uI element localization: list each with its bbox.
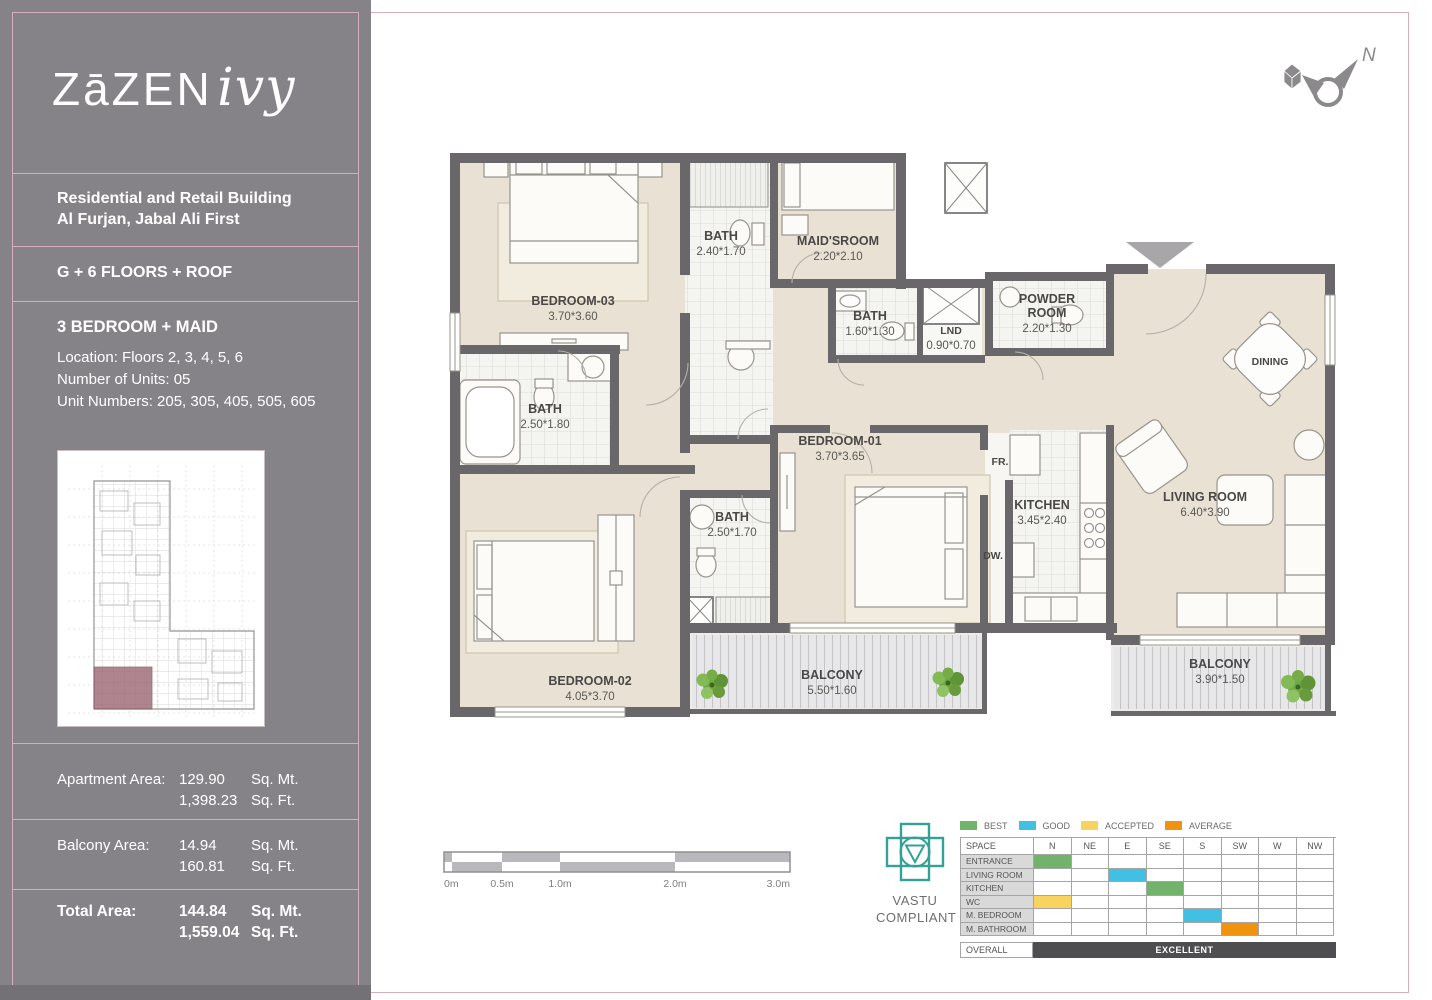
legend-label: AVERAGE	[1189, 821, 1232, 831]
vastu-overall-value: EXCELLENT	[1033, 942, 1336, 958]
area-value-mt: 144.84	[179, 902, 251, 923]
vastu-empty-cell	[1147, 923, 1185, 937]
area-value-mt: 129.90	[179, 770, 251, 791]
legend-label: BEST	[984, 821, 1008, 831]
unit-details: Location: Floors 2, 3, 4, 5, 6 Number of…	[57, 347, 316, 413]
vastu-row: WC	[961, 896, 1336, 910]
room-label: DINING	[1252, 356, 1289, 368]
room-dimensions: 3.45*2.40	[1017, 515, 1066, 527]
vastu-rating-cell	[1034, 855, 1072, 869]
divider	[12, 301, 359, 302]
room-label: POWDER	[1019, 292, 1075, 306]
building-title: Residential and Retail Building Al Furja…	[57, 188, 292, 230]
vastu-header-direction: NW	[1297, 838, 1335, 855]
vastu-empty-cell	[1034, 923, 1072, 937]
room-dimensions: 2.40*1.70	[696, 246, 745, 258]
vastu-empty-cell	[1184, 896, 1222, 910]
vastu-empty-cell	[1222, 896, 1260, 910]
room-label: FR.	[992, 456, 1009, 468]
brand-subname: ivy	[217, 58, 295, 118]
scale-label: 3.0m	[767, 878, 791, 890]
vastu-row: ENTRANCE	[961, 855, 1336, 869]
vastu-header-space: SPACE	[961, 838, 1034, 855]
room-label: BEDROOM-01	[798, 434, 881, 448]
area-value-mt: 14.94	[179, 836, 251, 857]
vastu-row: LIVING ROOM	[961, 869, 1336, 883]
pillow	[590, 162, 616, 174]
room-label: LND	[940, 325, 962, 337]
apartment-area-block: Apartment Area: 129.90 Sq. Mt. 1,398.23 …	[57, 770, 347, 811]
sink	[1000, 287, 1020, 307]
unit-type: 3 BEDROOM + MAID	[57, 318, 218, 337]
brand-name: ZāZEN	[52, 63, 213, 115]
pillow	[945, 493, 963, 543]
room-label: LIVING ROOM	[1163, 490, 1247, 504]
compass-north-label: N	[1362, 45, 1376, 66]
highlighted-unit	[94, 667, 152, 709]
vastu-empty-cell	[1072, 855, 1110, 869]
units-count-line: Number of Units: 05	[57, 369, 316, 391]
sidebar: ZāZEN ivy Residential and Retail Buildin…	[0, 0, 371, 1000]
room-dimensions: 4.05*3.70	[565, 691, 614, 703]
room-dimensions: 1.60*1.30	[845, 326, 894, 338]
room-dimensions: 2.20*2.10	[813, 251, 862, 263]
vastu-caption-line1: VASTU	[876, 892, 954, 909]
scale-label: 2.0m	[663, 878, 687, 890]
vastu-empty-cell	[1034, 869, 1072, 883]
room-label: DW.	[983, 550, 1003, 562]
room-dimensions: 5.50*1.60	[807, 685, 856, 697]
sidebar-footer-strip	[0, 985, 371, 1000]
sink	[690, 505, 714, 529]
vastu-space-label: WC	[961, 896, 1034, 910]
area-unit-ft: Sq. Ft.	[251, 857, 347, 878]
unit-numbers-line: Unit Numbers: 205, 305, 405, 505, 605	[57, 391, 316, 413]
area-unit-mt: Sq. Mt.	[251, 770, 347, 791]
floor-plan: BEDROOM-033.70*3.60BATH2.40*1.70MAID'SRO…	[440, 145, 1360, 745]
frame-bottom-line	[371, 992, 1409, 993]
frame-right-line	[1408, 12, 1409, 993]
room-label: BALCONY	[801, 668, 863, 682]
room-dimensions: 2.50*1.80	[520, 419, 569, 431]
key-plan-thumbnail	[57, 450, 265, 727]
vastu-empty-cell	[1184, 869, 1222, 883]
vastu-empty-cell	[1184, 923, 1222, 937]
pillow	[477, 595, 492, 639]
vastu-header-direction: SW	[1222, 838, 1260, 855]
vastu-rating-cell	[1147, 882, 1185, 896]
vastu-header-direction: SE	[1147, 838, 1185, 855]
vastu-empty-cell	[1147, 896, 1185, 910]
room-dimensions: 2.20*1.30	[1022, 323, 1071, 335]
vastu-empty-cell	[1072, 896, 1110, 910]
legend-chip	[960, 821, 977, 830]
legend-chip	[1081, 821, 1098, 830]
room-label: BATH	[853, 309, 887, 323]
vastu-rating-cell	[1034, 896, 1072, 910]
vastu-empty-cell	[1297, 855, 1335, 869]
balcony-area-block: Balcony Area: 14.94 Sq. Mt. 160.81 Sq. F…	[57, 836, 347, 877]
building-line2: Al Furjan, Jabal Ali First	[57, 209, 292, 230]
room-label: KITCHEN	[1014, 498, 1070, 512]
legend-chip	[1019, 821, 1036, 830]
vastu-header-direction: S	[1184, 838, 1222, 855]
divider	[12, 246, 359, 247]
vastu-empty-cell	[1109, 855, 1147, 869]
scale-bar-blocks	[444, 852, 790, 872]
area-label: Balcony Area:	[57, 836, 179, 857]
building-line1: Residential and Retail Building	[57, 188, 292, 209]
vastu-space-label: KITCHEN	[961, 882, 1034, 896]
area-unit-ft: Sq. Ft.	[251, 923, 347, 944]
scale-bar-labels: 0m0.5m1.0m2.0m3.0m	[444, 878, 790, 890]
vastu-table: SPACENNEESESSWWNWENTRANCELIVING ROOMKITC…	[960, 837, 1336, 936]
vastu-caption-line2: COMPLIANT	[876, 909, 954, 926]
divider	[12, 819, 359, 820]
vastu-header-direction: E	[1109, 838, 1147, 855]
vastu-empty-cell	[1259, 869, 1297, 883]
scale-label: 1.0m	[548, 878, 572, 890]
vastu-empty-cell	[1297, 923, 1335, 937]
vastu-empty-cell	[1072, 909, 1110, 923]
area-unit-mt: Sq. Mt.	[251, 836, 347, 857]
vastu-empty-cell	[1297, 909, 1335, 923]
area-value-ft: 160.81	[179, 857, 251, 878]
room-label: BATH	[704, 229, 738, 243]
vastu-empty-cell	[1109, 923, 1147, 937]
vastu-empty-cell	[1297, 896, 1335, 910]
north-compass: N	[1262, 35, 1392, 120]
room-label: BALCONY	[1189, 657, 1251, 671]
vastu-empty-cell	[1034, 909, 1072, 923]
vastu-empty-cell	[1109, 909, 1147, 923]
vastu-empty-cell	[1297, 869, 1335, 883]
room-label: BATH	[528, 402, 562, 416]
vastu-empty-cell	[1297, 882, 1335, 896]
vastu-rating-cell	[1222, 923, 1260, 937]
legend-label: ACCEPTED	[1105, 821, 1154, 831]
vastu-empty-cell	[1072, 882, 1110, 896]
location-line: Location: Floors 2, 3, 4, 5, 6	[57, 347, 316, 369]
frame-top-line	[371, 12, 1408, 13]
scale-bar: 0m0.5m1.0m2.0m3.0m	[443, 851, 795, 896]
area-value-ft: 1,398.23	[179, 791, 251, 812]
vastu-empty-cell	[1109, 882, 1147, 896]
vastu-overall-row: OVERALL EXCELLENT	[960, 942, 1336, 958]
sofa	[1177, 593, 1327, 627]
area-unit-mt: Sq. Mt.	[251, 902, 347, 923]
room-label: MAID'SROOM	[797, 234, 879, 248]
vastu-space-label: LIVING ROOM	[961, 869, 1034, 883]
total-area-block: Total Area: 144.84 Sq. Mt. 1,559.04 Sq. …	[57, 902, 347, 943]
side-table	[1294, 430, 1324, 460]
area-label: Apartment Area:	[57, 770, 179, 791]
vastu-empty-cell	[1259, 882, 1297, 896]
pillow	[516, 162, 542, 174]
area-unit-ft: Sq. Ft.	[251, 791, 347, 812]
room-dimensions: 3.70*3.65	[815, 451, 864, 463]
key-plan-drawing	[58, 451, 264, 726]
vastu-rating-cell	[1109, 869, 1147, 883]
vastu-empty-cell	[1184, 855, 1222, 869]
vastu-header-direction: NE	[1072, 838, 1110, 855]
divider	[12, 173, 359, 174]
room-dimensions: 2.50*1.70	[707, 527, 756, 539]
legend-chip	[1165, 821, 1182, 830]
pillow	[945, 549, 963, 599]
room-label: BEDROOM-02	[548, 674, 631, 688]
scale-label: 0.5m	[490, 878, 514, 890]
vastu-empty-cell	[1147, 855, 1185, 869]
compass-southwest-pointer	[1302, 75, 1324, 97]
vastu-empty-cell	[1259, 923, 1297, 937]
room-dimensions: 3.90*1.50	[1195, 674, 1244, 686]
vastu-empty-cell	[1034, 882, 1072, 896]
vastu-empty-cell	[1072, 869, 1110, 883]
vastu-empty-cell	[1184, 882, 1222, 896]
room-dimensions: 3.70*3.60	[548, 311, 597, 323]
vastu-row: M. BEDROOM	[961, 909, 1336, 923]
vastu-space-label: M. BATHROOM	[961, 923, 1034, 937]
vastu-space-label: M. BEDROOM	[961, 909, 1034, 923]
scale-label: 0m	[444, 878, 459, 890]
vastu-legend: BESTGOODACCEPTEDAVERAGE	[960, 819, 1336, 832]
pillow	[784, 163, 800, 207]
vastu-space-label: ENTRANCE	[961, 855, 1034, 869]
vastu-empty-cell	[1147, 909, 1185, 923]
area-label: Total Area:	[57, 902, 179, 923]
vastu-header-direction: W	[1259, 838, 1297, 855]
vastu-rating-cell	[1184, 909, 1222, 923]
vastu-header-direction: N	[1034, 838, 1072, 855]
room-dimensions: 6.40*3.90	[1180, 507, 1229, 519]
room-label: BATH	[715, 510, 749, 524]
vastu-empty-cell	[1259, 909, 1297, 923]
room-label: BEDROOM-03	[531, 294, 614, 308]
vastu-empty-cell	[1222, 909, 1260, 923]
vastu-overall-label: OVERALL	[960, 942, 1033, 958]
vastu-empty-cell	[1222, 855, 1260, 869]
vastu-empty-cell	[1222, 869, 1260, 883]
vastu-empty-cell	[1222, 882, 1260, 896]
divider	[12, 743, 359, 744]
fridge	[1010, 435, 1040, 475]
brand-logo: ZāZEN ivy	[52, 58, 296, 118]
vastu-empty-cell	[1259, 896, 1297, 910]
vastu-panel: BESTGOODACCEPTEDAVERAGE SPACENNEESESSWWN…	[960, 819, 1336, 958]
vastu-empty-cell	[1109, 896, 1147, 910]
vastu-row: M. BATHROOM	[961, 923, 1336, 937]
vastu-row: KITCHEN	[961, 882, 1336, 896]
bed	[510, 175, 638, 263]
vastu-mandala-icon	[882, 820, 948, 884]
room-dimensions: 0.90*0.70	[926, 340, 975, 352]
area-value-ft: 1,559.04	[179, 923, 251, 944]
divider	[12, 889, 359, 890]
room-label: ROOM	[1028, 306, 1067, 320]
vastu-compliant-badge: VASTU COMPLIANT	[876, 820, 954, 920]
vastu-empty-cell	[1147, 869, 1185, 883]
compass-ring	[1315, 79, 1341, 105]
vastu-empty-cell	[1072, 923, 1110, 937]
floors-line: G + 6 FLOORS + ROOF	[57, 264, 232, 282]
vastu-empty-cell	[1259, 855, 1297, 869]
legend-label: GOOD	[1043, 821, 1071, 831]
pillow	[477, 545, 492, 589]
pillow	[547, 162, 585, 174]
